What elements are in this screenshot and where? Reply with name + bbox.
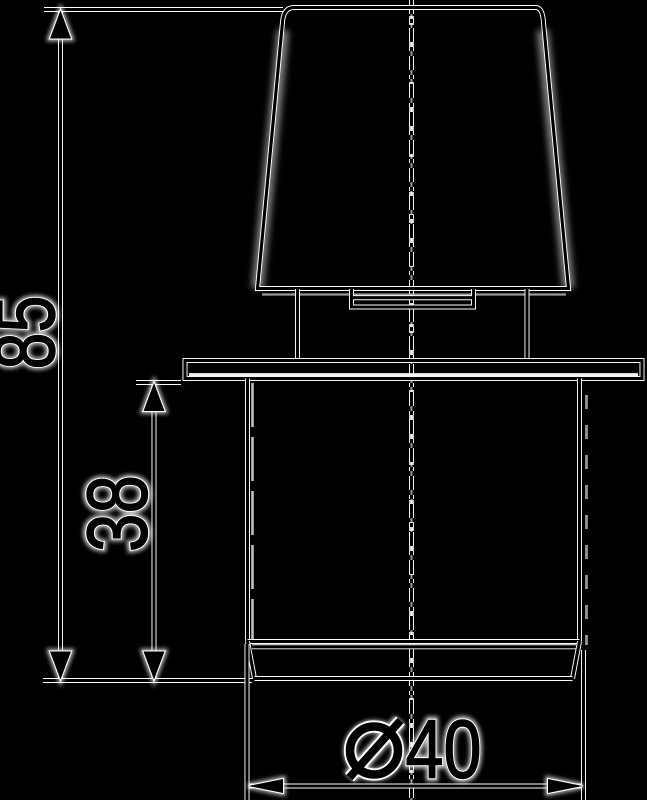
svg-text:85: 85 [0,296,73,370]
svg-text:40: 40 [406,703,482,796]
svg-text:38: 38 [71,475,166,552]
